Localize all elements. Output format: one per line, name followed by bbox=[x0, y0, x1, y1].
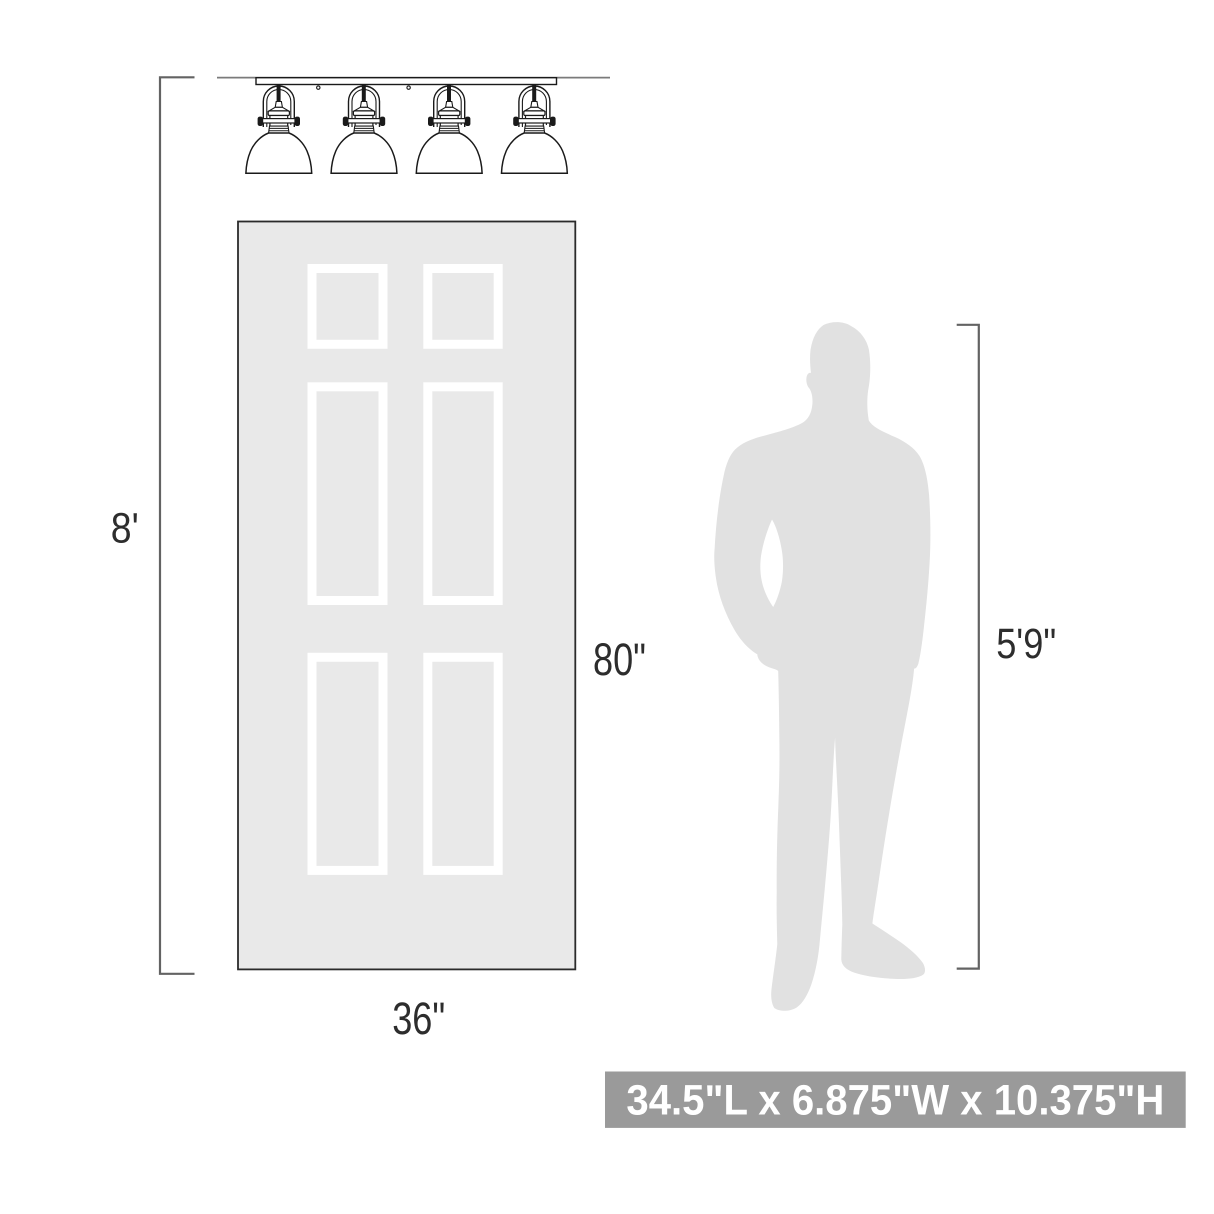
svg-text:8': 8' bbox=[111, 505, 139, 553]
svg-text:34.5"L x 6.875"W x 10.375"H: 34.5"L x 6.875"W x 10.375"H bbox=[626, 1077, 1164, 1125]
svg-text:80": 80" bbox=[593, 634, 646, 685]
svg-text:36": 36" bbox=[392, 993, 445, 1044]
svg-text:5'9": 5'9" bbox=[996, 620, 1056, 668]
